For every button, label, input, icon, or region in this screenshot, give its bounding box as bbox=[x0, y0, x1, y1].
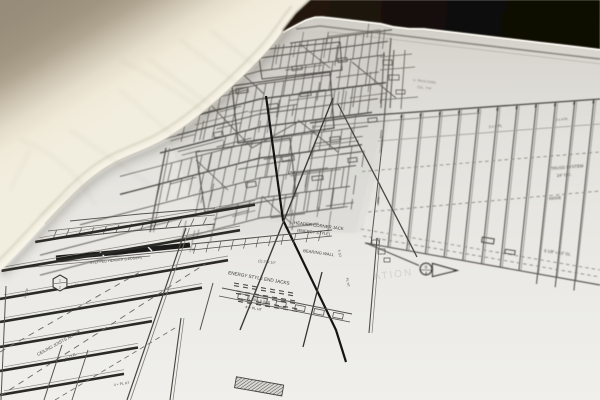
svg-text:+ 26: + 26 bbox=[71, 283, 80, 289]
svg-text:1: 1 bbox=[59, 279, 61, 283]
svg-text:2: 2 bbox=[59, 286, 61, 290]
svg-text:B: B bbox=[425, 264, 428, 269]
